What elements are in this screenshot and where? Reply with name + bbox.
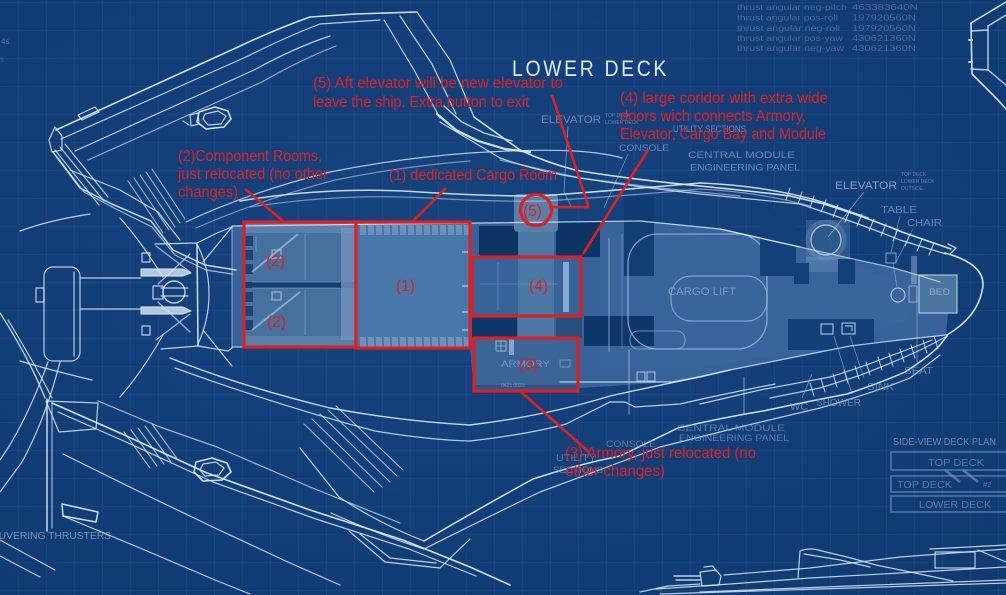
svg-text:(2): (2): [266, 253, 285, 270]
svg-text:ENGINEERING PANEL: ENGINEERING PANEL: [690, 163, 800, 174]
svg-text:(3) Armory, just relocated (no: (3) Armory, just relocated (no: [565, 445, 756, 462]
svg-text:thrust angular neg-roll: thrust angular neg-roll: [737, 23, 840, 33]
svg-text:SEAT: SEAT: [904, 366, 933, 377]
svg-text:0425 0023: 0425 0023: [501, 383, 525, 389]
svg-text:CONSOLE: CONSOLE: [619, 143, 669, 154]
svg-text:4s: 4s: [1, 37, 9, 46]
svg-text:ELEVATOR: ELEVATOR: [541, 114, 601, 126]
svg-text:430621360N: 430621360N: [852, 33, 916, 43]
svg-text:doors wich connects Armory,: doors wich connects Armory,: [620, 108, 806, 125]
svg-text:TOP DECK: TOP DECK: [901, 172, 927, 178]
svg-text:MANEUVERING THRUSTERS: MANEUVERING THRUSTERS: [0, 531, 111, 542]
svg-text:Elevator, Cargo Bay and Module: Elevator, Cargo Bay and Module: [620, 126, 826, 143]
svg-text:thrust angular neg-pitch: thrust angular neg-pitch: [737, 2, 847, 12]
svg-text:(5) Aft elevator will be new e: (5) Aft elevator will be new elevator to: [313, 75, 563, 92]
svg-text:BED: BED: [929, 287, 951, 297]
svg-text:SIDE-VIEW DECK PLAN: SIDE-VIEW DECK PLAN: [893, 437, 996, 448]
svg-text:(2)Component Rooms,: (2)Component Rooms,: [178, 148, 322, 165]
svg-text:(4) large coridor with extra w: (4) large coridor with extra wide: [620, 90, 828, 107]
svg-text:thrust angular neg-yaw: thrust angular neg-yaw: [737, 43, 845, 53]
svg-text:ENGINEERING PANEL: ENGINEERING PANEL: [679, 433, 789, 444]
svg-text:SHOWER: SHOWER: [816, 398, 861, 409]
svg-text:197920560N: 197920560N: [852, 23, 916, 33]
svg-text:463383640N: 463383640N: [852, 2, 918, 12]
svg-text:#2: #2: [983, 480, 991, 489]
svg-text:CARGO LIFT: CARGO LIFT: [668, 286, 736, 298]
svg-text:(3): (3): [519, 357, 538, 374]
svg-text:(1): (1): [396, 278, 415, 295]
svg-text:changes): changes): [178, 184, 238, 201]
svg-text:TOP DECK: TOP DECK: [928, 458, 984, 469]
svg-text:(4): (4): [529, 278, 548, 295]
svg-text:LOWER DECK: LOWER DECK: [919, 500, 991, 511]
svg-text:thrust angular pos-yaw: thrust angular pos-yaw: [737, 33, 844, 43]
svg-text:WC: WC: [790, 402, 808, 413]
svg-text:TOP DECK: TOP DECK: [897, 480, 952, 491]
svg-text:leave the ship. Extra button t: leave the ship. Extra button to exit: [313, 94, 530, 111]
svg-text:other changes): other changes): [565, 463, 665, 480]
svg-text:LOWER DECK: LOWER DECK: [901, 179, 935, 185]
svg-text:197920560N: 197920560N: [852, 13, 916, 23]
svg-text:430621360N: 430621360N: [852, 43, 916, 53]
svg-text:s: s: [0, 55, 4, 64]
svg-text:SINK: SINK: [867, 382, 894, 393]
svg-text:TABLE: TABLE: [881, 205, 917, 216]
svg-text:ELEVATOR: ELEVATOR: [835, 180, 897, 192]
svg-text:(5): (5): [523, 203, 542, 220]
svg-text:OUTSIDE: OUTSIDE: [901, 186, 924, 192]
svg-text:CENTRAL MODULE: CENTRAL MODULE: [688, 150, 795, 161]
svg-text:(1) dedicated Cargo Room: (1) dedicated Cargo Room: [389, 167, 557, 184]
svg-text:just relocated (no other: just relocated (no other: [177, 166, 328, 183]
svg-text:(2): (2): [267, 314, 286, 331]
svg-text:CHAIR: CHAIR: [907, 218, 942, 229]
svg-text:thrust angular pos-roll: thrust angular pos-roll: [737, 13, 838, 23]
